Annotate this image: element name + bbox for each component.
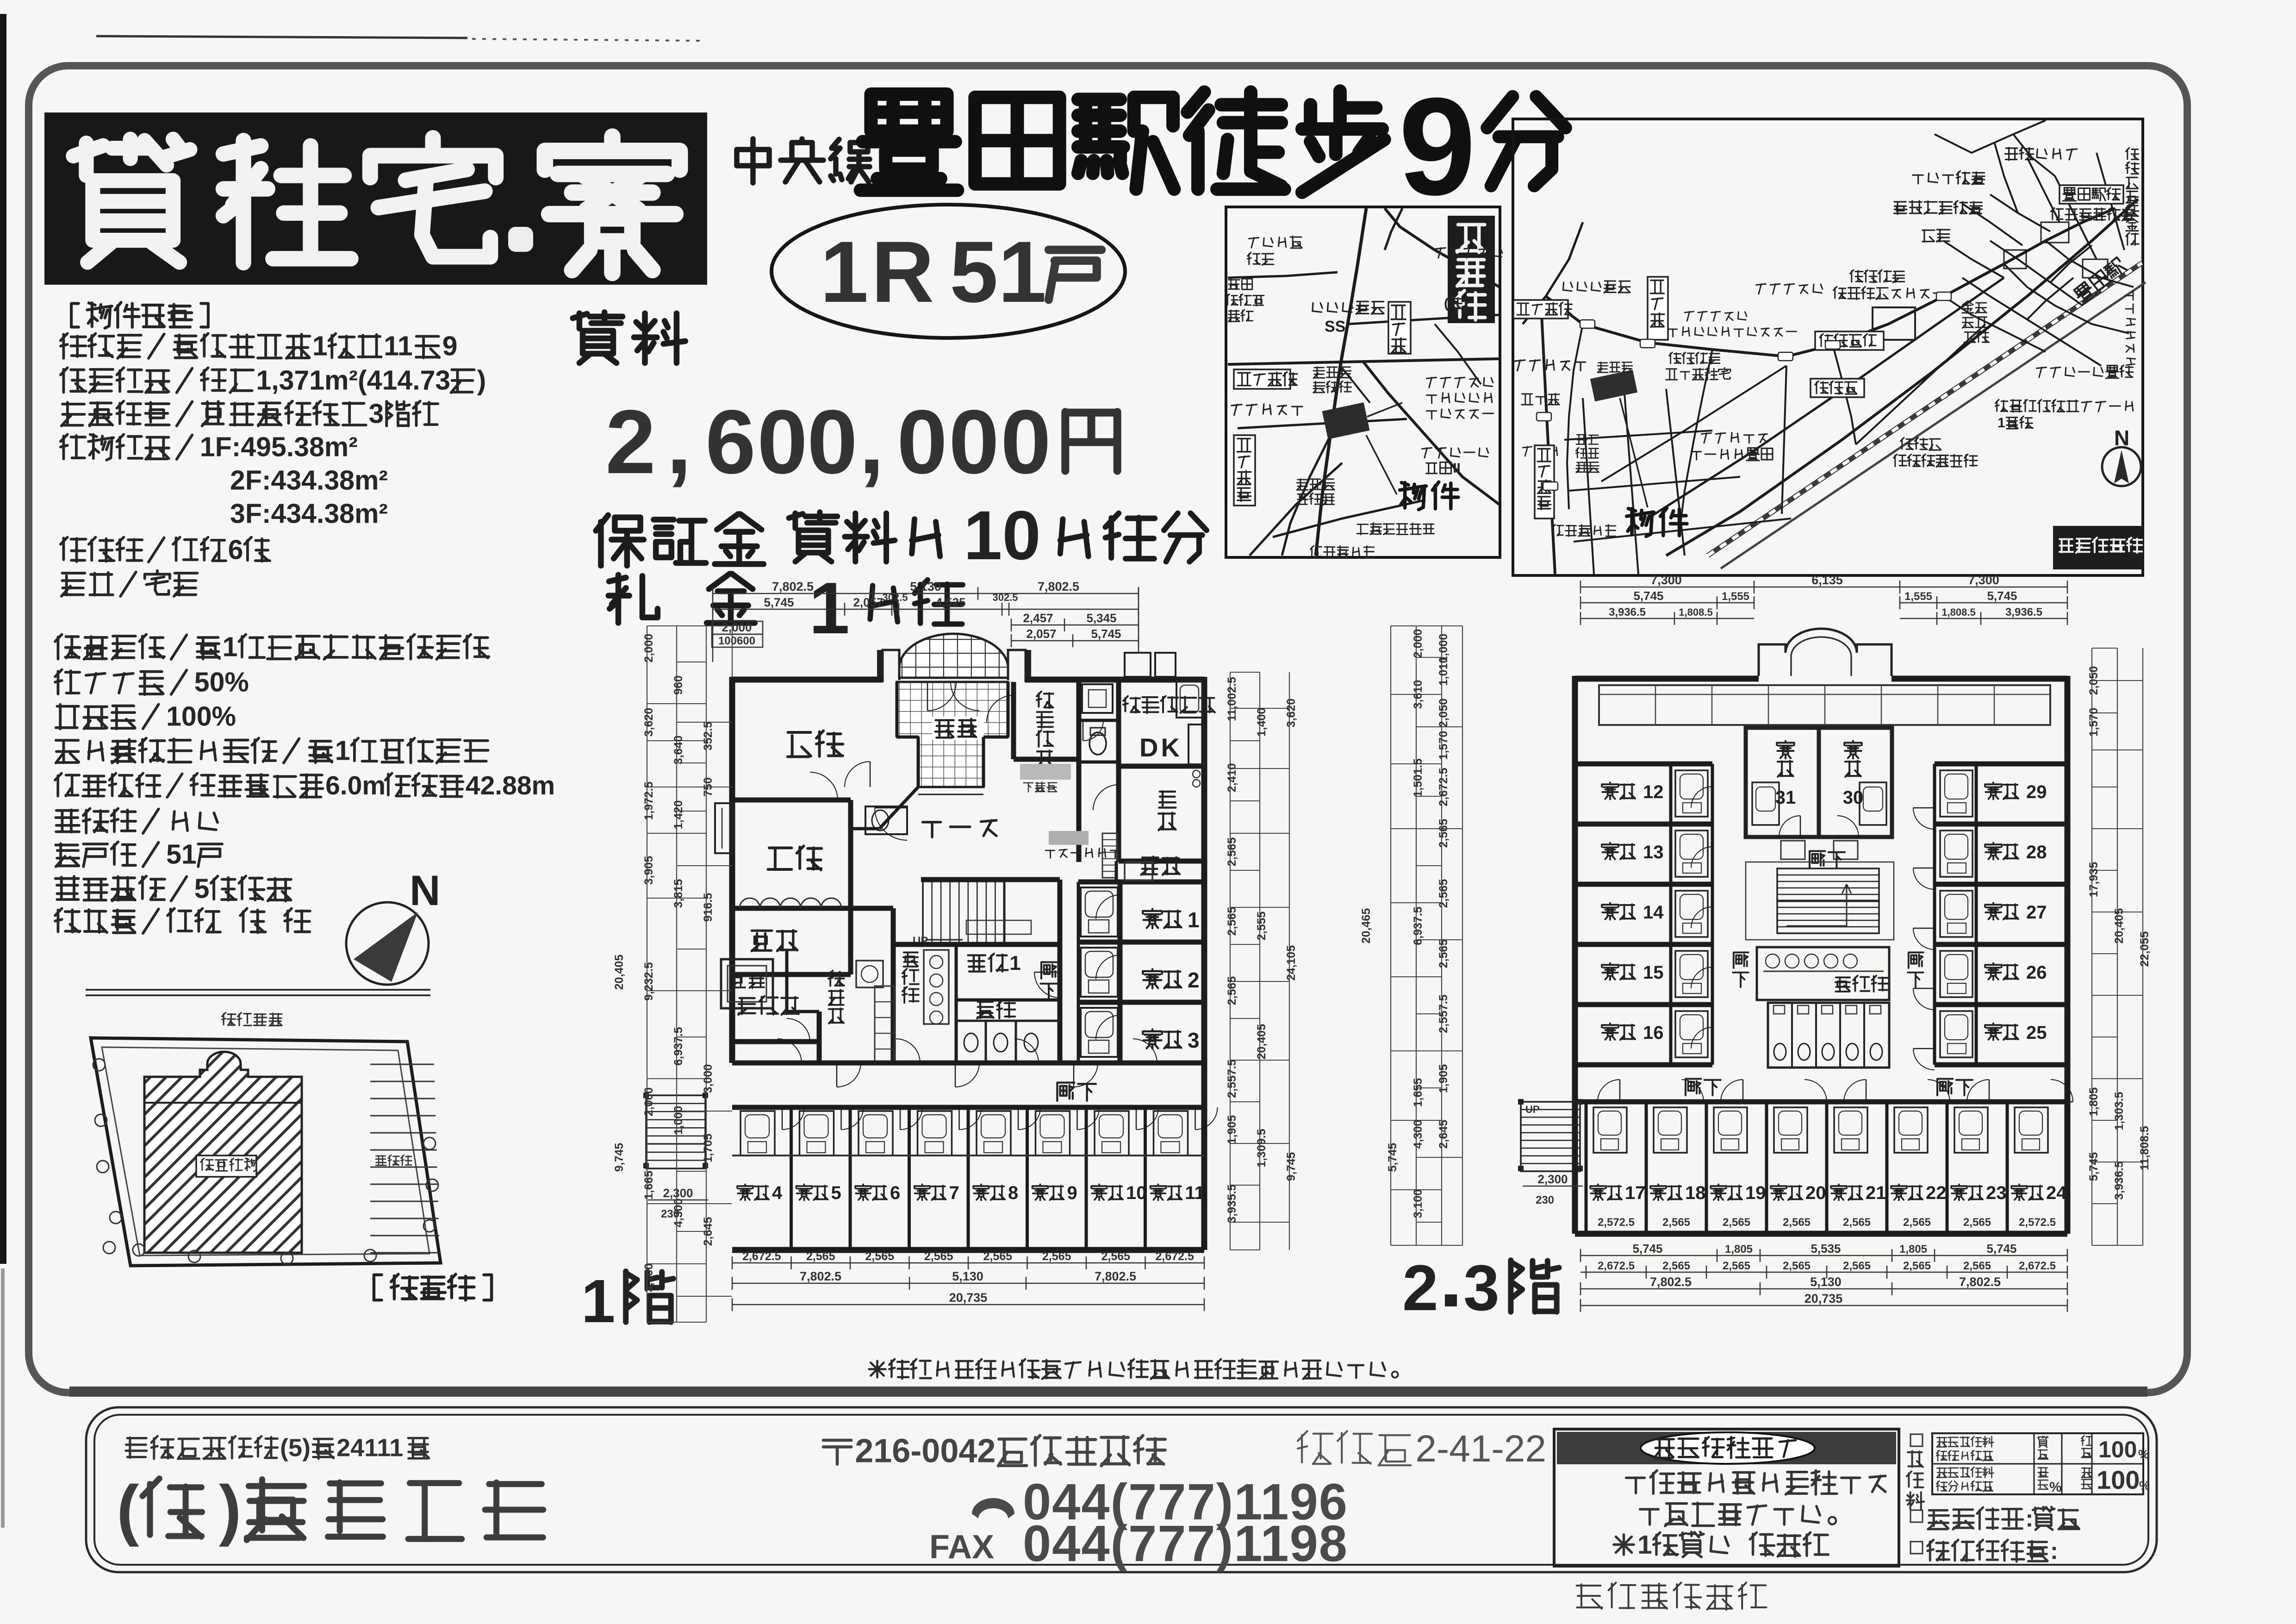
svg-text:1,665: 1,665 (642, 1171, 655, 1200)
svg-text:1,808.5: 1,808.5 (1941, 606, 1975, 618)
svg-text:1,555: 1,555 (1722, 590, 1749, 603)
svg-text:3,936.5: 3,936.5 (2005, 606, 2042, 618)
svg-text:2,300: 2,300 (663, 1186, 693, 1200)
svg-text:1,905: 1,905 (1437, 1064, 1450, 1093)
svg-text:UP: UP (1525, 1104, 1540, 1115)
svg-text:1,309.5: 1,309.5 (1255, 1129, 1268, 1168)
svg-text:1,805: 1,805 (2087, 1087, 2100, 1117)
svg-text:2,557.5: 2,557.5 (1437, 994, 1450, 1033)
svg-text:11,002.5: 11,002.5 (1226, 677, 1238, 721)
svg-text:9,745: 9,745 (1285, 1152, 1298, 1181)
svg-text:51: 51 (166, 839, 197, 870)
svg-text:302.5: 302.5 (882, 592, 908, 603)
svg-text:2,565: 2,565 (1783, 1216, 1811, 1229)
svg-text:2,565: 2,565 (983, 1250, 1013, 1263)
svg-text:9: 9 (1399, 69, 1476, 224)
svg-text:1,400: 1,400 (1255, 708, 1268, 737)
svg-text:19: 19 (1745, 1183, 1766, 1203)
svg-text:27: 27 (2026, 902, 2047, 923)
svg-text:044(777)1198: 044(777)1198 (1023, 1515, 1348, 1572)
svg-text:3: 3 (1463, 1251, 1500, 1324)
svg-text:7: 7 (949, 1183, 959, 1203)
svg-text:1: 1 (809, 568, 850, 649)
svg-text:1,501.5: 1,501.5 (1412, 758, 1425, 797)
svg-text:(: ( (1444, 296, 1449, 311)
svg-text:6: 6 (890, 1183, 900, 1203)
svg-text:16: 16 (1643, 1023, 1664, 1043)
svg-text:1,805: 1,805 (1899, 1243, 1927, 1255)
svg-text:3,100: 3,100 (642, 1263, 655, 1293)
svg-text:1: 1 (312, 331, 328, 362)
svg-text:5,130: 5,130 (952, 1269, 983, 1283)
svg-text:2,457: 2,457 (1023, 611, 1053, 625)
svg-text:2,645: 2,645 (1437, 1120, 1450, 1149)
svg-text:3,620: 3,620 (1285, 699, 1298, 728)
svg-text:8: 8 (1008, 1183, 1018, 1203)
svg-text:7,802.5: 7,802.5 (1959, 1275, 2001, 1289)
svg-text:1: 1 (335, 736, 350, 766)
svg-text:1,000: 1,000 (672, 1106, 685, 1135)
svg-text:24,105: 24,105 (1285, 945, 1298, 981)
svg-text:2,300: 2,300 (1537, 1172, 1568, 1186)
svg-text:7,802.5: 7,802.5 (800, 1269, 841, 1283)
svg-text:9: 9 (1067, 1183, 1077, 1203)
svg-text:9,232.5: 9,232.5 (642, 962, 655, 1001)
svg-text:4,300: 4,300 (672, 1199, 685, 1228)
svg-text:11: 11 (384, 331, 412, 362)
svg-text:2,000: 2,000 (642, 634, 655, 663)
svg-text:2,565: 2,565 (1437, 879, 1450, 908)
svg-text:%: % (2049, 1480, 2062, 1495)
svg-text:2,565: 2,565 (1226, 907, 1238, 936)
svg-text:3: 3 (369, 399, 384, 429)
svg-text:20,405: 20,405 (1255, 1024, 1268, 1060)
svg-text:24: 24 (2046, 1183, 2067, 1203)
svg-text:5,130: 5,130 (910, 580, 941, 593)
svg-text:216-0042: 216-0042 (855, 1433, 996, 1470)
svg-text:6,937.5: 6,937.5 (1412, 906, 1425, 945)
svg-text:1: 1 (1637, 1530, 1652, 1560)
svg-text:750: 750 (702, 777, 715, 797)
svg-text:DK: DK (1139, 733, 1182, 762)
svg-text:II: II (1453, 461, 1461, 476)
svg-text:100600: 100600 (718, 635, 755, 647)
svg-text:SS: SS (1325, 318, 1345, 336)
svg-text:N: N (410, 867, 440, 914)
svg-text:3: 3 (1188, 1028, 1200, 1052)
svg-text:1,705: 1,705 (702, 1134, 715, 1163)
svg-text:3,640: 3,640 (672, 736, 685, 765)
svg-text:2,645: 2,645 (702, 1217, 715, 1246)
svg-text:6: 6 (705, 391, 756, 493)
svg-text:2F:434.38m²: 2F:434.38m² (230, 465, 388, 496)
svg-text:2-41-22: 2-41-22 (1415, 1428, 1546, 1470)
svg-text:14: 14 (1643, 902, 1664, 923)
svg-text:1: 1 (1997, 415, 2005, 431)
svg-text:): ) (219, 1472, 242, 1547)
svg-text:2,000: 2,000 (1412, 629, 1425, 658)
svg-text:0: 0 (949, 391, 999, 493)
svg-text:10: 10 (964, 496, 1041, 574)
svg-text:22: 22 (1926, 1183, 1947, 1203)
svg-text:2,555: 2,555 (1255, 912, 1268, 941)
svg-text:7,802.5: 7,802.5 (1038, 580, 1079, 593)
svg-text:2,565: 2,565 (1226, 837, 1238, 867)
svg-text:): ) (1463, 296, 1468, 311)
svg-text:2,057: 2,057 (1026, 627, 1056, 641)
svg-text:3,100: 3,100 (1412, 1189, 1425, 1218)
svg-text:2,050: 2,050 (1437, 699, 1450, 728)
svg-text:2,565: 2,565 (924, 1250, 953, 1263)
svg-text:1: 1 (581, 1267, 615, 1335)
svg-text:%: % (2139, 1479, 2150, 1493)
svg-text:20,735: 20,735 (949, 1291, 988, 1305)
svg-text:2,565: 2,565 (1042, 1250, 1071, 1263)
svg-text:5,130: 5,130 (1810, 1275, 1842, 1289)
svg-text:0: 0 (757, 391, 808, 493)
svg-text:11: 11 (1185, 1183, 1205, 1203)
svg-text:1,570: 1,570 (1437, 731, 1450, 760)
svg-text:2,565: 2,565 (1963, 1216, 1991, 1229)
svg-text:916.5: 916.5 (702, 893, 715, 922)
svg-text:20: 20 (1805, 1183, 1826, 1203)
svg-text:18: 18 (1685, 1183, 1706, 1203)
svg-text:20,405: 20,405 (2113, 908, 2126, 944)
svg-text:2,565: 2,565 (1662, 1216, 1690, 1229)
svg-text:5,745: 5,745 (1986, 1242, 2016, 1255)
svg-text:2,050: 2,050 (2087, 666, 2100, 695)
svg-text:1,570: 1,570 (2087, 708, 2100, 737)
svg-text:0: 0 (807, 391, 858, 493)
svg-text:7,802.5: 7,802.5 (1650, 1275, 1692, 1289)
svg-text:2,672.5: 2,672.5 (742, 1250, 781, 1263)
svg-text:5: 5 (831, 1183, 841, 1203)
svg-text:1,655: 1,655 (1412, 1078, 1425, 1107)
svg-text:230: 230 (1536, 1194, 1554, 1206)
svg-text:%: % (2138, 1447, 2149, 1461)
svg-text:7,802.5: 7,802.5 (1095, 1269, 1136, 1283)
svg-text:1,905: 1,905 (1226, 1115, 1238, 1144)
svg-text:21: 21 (1866, 1183, 1886, 1203)
svg-text:2,000: 2,000 (722, 620, 752, 634)
svg-text:3,905: 3,905 (642, 856, 655, 885)
svg-text:2,672.5: 2,672.5 (2019, 1260, 2056, 1272)
svg-text:3,936.5: 3,936.5 (1609, 606, 1646, 618)
svg-text:1,972.5: 1,972.5 (642, 781, 655, 820)
svg-text:100%: 100% (166, 701, 236, 732)
svg-text:5,745: 5,745 (1987, 589, 2017, 603)
svg-text:7,300: 7,300 (1968, 573, 1999, 587)
svg-text:22,055: 22,055 (2138, 931, 2151, 967)
svg-text:0: 0 (897, 391, 947, 493)
svg-text:302.5: 302.5 (992, 592, 1018, 603)
svg-text:6: 6 (228, 535, 243, 565)
svg-text:3,936.5: 3,936.5 (2113, 1161, 2126, 1200)
svg-text:,: , (859, 391, 884, 493)
svg-text:25: 25 (2026, 1023, 2047, 1043)
svg-text:5,745: 5,745 (1091, 627, 1121, 641)
svg-text:5: 5 (194, 874, 210, 904)
svg-text:5,745: 5,745 (1632, 1242, 1662, 1255)
svg-text:2,565: 2,565 (1437, 819, 1450, 848)
svg-text:29: 29 (2026, 782, 2047, 802)
svg-text:5,745: 5,745 (1633, 589, 1663, 603)
svg-text:1,420: 1,420 (672, 800, 685, 830)
svg-text:2,572.5: 2,572.5 (1598, 1216, 1635, 1229)
svg-text:2: 2 (605, 391, 656, 493)
svg-text:13: 13 (1643, 842, 1664, 862)
svg-text:): ) (477, 365, 486, 396)
svg-text:50%: 50% (194, 667, 249, 698)
svg-text:2,672.5: 2,672.5 (1437, 768, 1450, 806)
svg-text:3,620: 3,620 (642, 708, 655, 737)
svg-text:1,303.5: 1,303.5 (2113, 1092, 2126, 1131)
svg-text:4,525: 4,525 (935, 595, 965, 609)
svg-text:(: ( (117, 1472, 139, 1547)
svg-text:(5): (5) (280, 1434, 311, 1462)
svg-text:26: 26 (2026, 962, 2047, 983)
svg-text:4,300: 4,300 (1412, 1120, 1425, 1149)
svg-text:2,565: 2,565 (1101, 1250, 1131, 1263)
svg-text:1,805: 1,805 (1725, 1243, 1753, 1255)
svg-text:3,935.5: 3,935.5 (1226, 1184, 1238, 1223)
svg-text:2: 2 (1402, 1251, 1438, 1324)
svg-text:24111: 24111 (336, 1434, 403, 1462)
svg-text:6.0m: 6.0m (325, 771, 386, 800)
svg-text:2,565: 2,565 (1226, 976, 1238, 1006)
svg-text:1,555: 1,555 (1904, 590, 1932, 603)
svg-text:2,565: 2,565 (1843, 1260, 1871, 1272)
svg-text:2,565: 2,565 (1723, 1216, 1750, 1229)
svg-text:2,565: 2,565 (1903, 1216, 1931, 1229)
svg-text:2,565: 2,565 (806, 1250, 835, 1263)
svg-text:5,745: 5,745 (1386, 1143, 1399, 1172)
svg-text:2,565: 2,565 (865, 1250, 895, 1263)
svg-text:20,465: 20,465 (1360, 908, 1373, 944)
svg-text:20,735: 20,735 (1804, 1292, 1843, 1305)
svg-text:2,672.5: 2,672.5 (1598, 1260, 1635, 1272)
svg-text:100: 100 (2097, 1465, 2140, 1494)
svg-text:7,802.5: 7,802.5 (772, 580, 814, 593)
svg-text:2: 2 (1188, 968, 1200, 992)
svg-text:2,565: 2,565 (1437, 939, 1450, 968)
svg-text:5,745: 5,745 (2087, 1152, 2100, 1181)
svg-text:2,565: 2,565 (1963, 1260, 1991, 1272)
svg-text:9,745: 9,745 (613, 1143, 626, 1172)
svg-text:1,010: 1,010 (1437, 657, 1450, 686)
svg-text:,: , (666, 391, 691, 493)
svg-text:3,815: 3,815 (672, 879, 685, 908)
svg-text:28: 28 (2026, 842, 2047, 862)
svg-text:2,057: 2,057 (853, 595, 883, 609)
svg-text:1: 1 (1009, 952, 1020, 974)
svg-text:10: 10 (1126, 1183, 1147, 1203)
svg-text:5,745: 5,745 (764, 595, 794, 609)
svg-text:2,565: 2,565 (1843, 1216, 1871, 1229)
svg-text:2,565: 2,565 (1662, 1260, 1690, 1272)
svg-text:0: 0 (1001, 391, 1051, 493)
svg-text:3F:434.38m²: 3F:434.38m² (230, 499, 388, 529)
svg-text:FAX: FAX (929, 1529, 994, 1566)
svg-text:17,935: 17,935 (2087, 862, 2100, 898)
svg-text:1R: 1R (820, 223, 937, 320)
svg-text:2,565: 2,565 (1783, 1260, 1811, 1272)
svg-text:2,572.5: 2,572.5 (2019, 1216, 2056, 1229)
svg-text:23: 23 (1986, 1183, 2007, 1203)
svg-text:17: 17 (1625, 1183, 1646, 1203)
svg-text:12: 12 (1643, 782, 1664, 802)
svg-text:352.5: 352.5 (702, 722, 715, 751)
svg-text:2,672.5: 2,672.5 (1155, 1250, 1194, 1263)
svg-text:5,345: 5,345 (1086, 611, 1116, 625)
svg-text:3,610: 3,610 (1412, 680, 1425, 709)
svg-text:3,000: 3,000 (702, 1064, 715, 1093)
svg-text:2,565: 2,565 (1723, 1260, 1750, 1272)
svg-text:11,808.5: 11,808.5 (2138, 1126, 2151, 1170)
svg-text:51: 51 (950, 223, 1046, 320)
svg-text:1F:495.38m²: 1F:495.38m² (200, 432, 358, 462)
svg-text:9: 9 (442, 331, 458, 362)
svg-text:7,300: 7,300 (1650, 573, 1682, 587)
svg-text:42.88m: 42.88m (466, 771, 555, 800)
svg-text:15: 15 (1643, 962, 1664, 983)
svg-text:20,405: 20,405 (613, 955, 626, 990)
svg-text:1: 1 (223, 632, 238, 662)
svg-text:1,808.5: 1,808.5 (1679, 606, 1712, 618)
svg-text:2,557.5: 2,557.5 (1226, 1059, 1238, 1098)
svg-text:2,000: 2,000 (642, 1087, 655, 1117)
svg-text::: : (2050, 1538, 2058, 1565)
svg-text:2,410: 2,410 (1226, 763, 1238, 793)
svg-text:6,135: 6,135 (1811, 573, 1843, 587)
svg-text:5,535: 5,535 (1811, 1242, 1841, 1255)
svg-text:4: 4 (772, 1183, 783, 1203)
svg-text:2,565: 2,565 (1903, 1260, 1931, 1272)
svg-text:6,937.5: 6,937.5 (672, 1027, 685, 1066)
svg-text:1: 1 (1188, 908, 1200, 932)
svg-text:100: 100 (2098, 1437, 2137, 1462)
svg-text:960: 960 (672, 675, 685, 695)
svg-text:1,371m²(414.73: 1,371m²(414.73 (256, 365, 450, 396)
